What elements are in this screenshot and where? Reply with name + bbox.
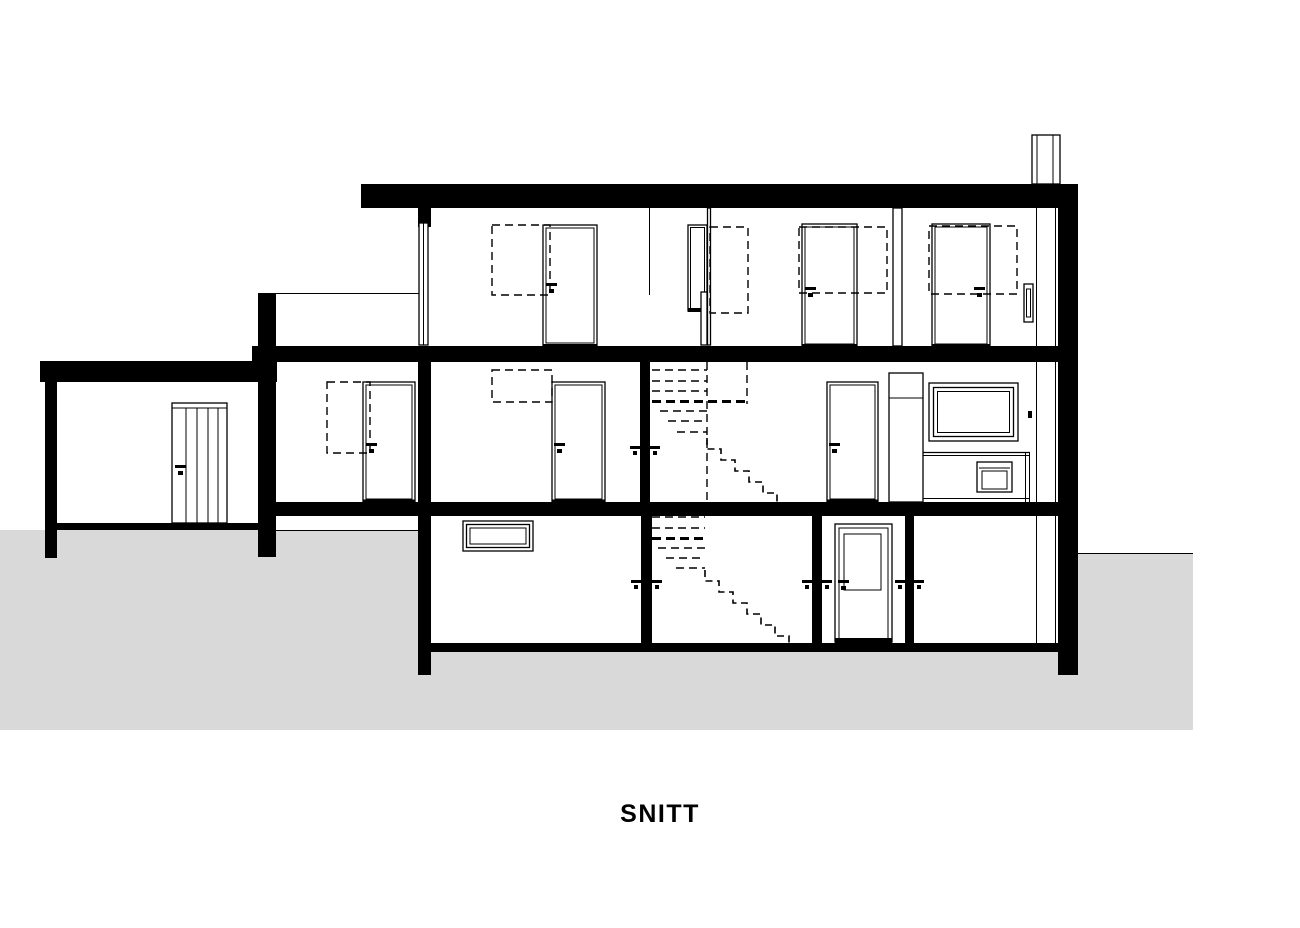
windows: [419, 223, 1032, 551]
wardrobe-upper-2: [799, 227, 887, 293]
drawing-title: SNITT: [620, 800, 700, 828]
ground-fill: [0, 530, 1193, 730]
door-upper-2: [802, 224, 857, 347]
wall-handle-marks: [630, 446, 924, 589]
right-exterior-wall: [1058, 208, 1078, 675]
extension-left-wall: [258, 293, 276, 557]
section-drawing: SNITT: [0, 0, 1300, 928]
door-upper-3: [932, 224, 990, 347]
basement-window: [463, 521, 533, 551]
window-handle: [1028, 411, 1032, 418]
wardrobe-upper-1: [492, 225, 550, 295]
wardrobe-upper-3: [929, 226, 1017, 294]
interior-wall-basement-1: [641, 516, 652, 643]
door-stairwell-open: [688, 225, 707, 345]
main-left-wall: [418, 362, 431, 675]
basement-floor-slab: [431, 643, 1060, 652]
stair-steps-down: [705, 570, 789, 643]
upper-floor-slab: [252, 346, 1078, 362]
door-carport: [172, 403, 227, 523]
roof-slab: [361, 184, 1078, 208]
carport-ground-slab: [50, 523, 260, 530]
oven: [977, 462, 1012, 492]
chimney-stack: [1032, 135, 1060, 184]
kitchen-window: [929, 383, 1032, 441]
door-basement: [835, 524, 892, 643]
upper-partition-wall: [893, 208, 902, 346]
upper-left-window: [419, 223, 428, 345]
interior-wall-main-stair: [640, 362, 650, 502]
drawing-sheet: SNITT: [0, 0, 1300, 928]
stair-steps-down: [707, 438, 777, 502]
stair-opening-upper: [710, 227, 748, 313]
door-main-1: [552, 382, 605, 502]
interior-wall-basement-2: [812, 516, 822, 643]
door-extension: [363, 382, 415, 502]
tall-cabinet: [889, 373, 923, 502]
interior-wall-basement-3: [905, 516, 914, 643]
door-main-2: [827, 382, 878, 502]
main-floor-slab: [258, 502, 1078, 516]
chimney: [1032, 135, 1060, 184]
carport-roof-slab: [40, 361, 277, 382]
radiator-upper: [1024, 284, 1033, 322]
hidden-cabinet-main: [492, 370, 552, 402]
door-upper-1: [543, 225, 597, 347]
carport-post: [45, 382, 57, 558]
kitchen: [889, 373, 1030, 502]
stair-basement: [652, 517, 789, 643]
stair-main-floor: [652, 362, 777, 502]
